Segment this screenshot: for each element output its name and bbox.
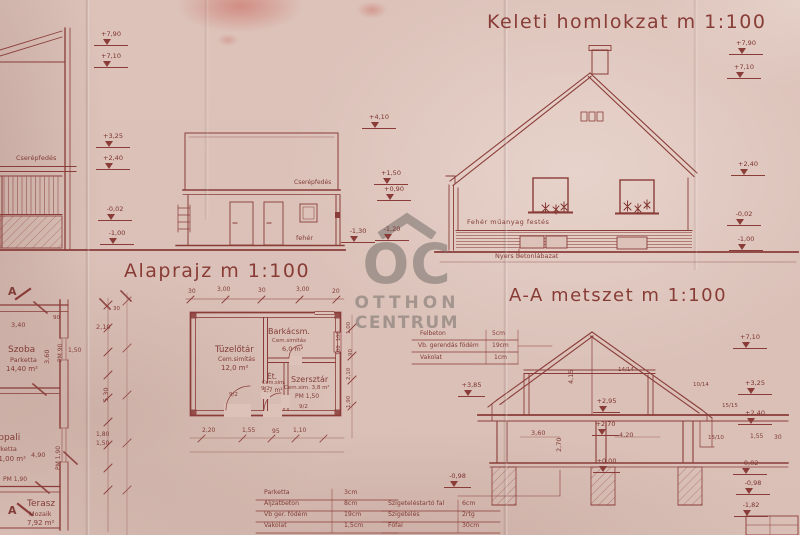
level-marker: -0,98	[736, 480, 770, 495]
room-label: Szoba	[8, 346, 35, 355]
title-east-facade: Keleti homlokzat m 1:100	[487, 13, 766, 32]
table-cell: 8cm	[344, 501, 357, 507]
dim-label: 2,10	[96, 324, 110, 331]
plinth-label: Nyers betonlábazat	[495, 253, 558, 260]
west-building-drawing	[0, 28, 76, 250]
dim-label: 90	[349, 349, 355, 356]
room-finish: Cem.simítás	[272, 339, 306, 345]
level-marker: +7,10	[733, 334, 767, 349]
dim-label: 30	[188, 289, 196, 295]
table-cell: Szigeteléstartó fal	[388, 501, 444, 507]
paper-crease	[204, 0, 209, 220]
dim-label: 1,50	[68, 348, 81, 354]
table-cell: Szigetelés	[388, 512, 420, 518]
roof-material-label: Cserépfedés	[16, 155, 56, 162]
room-area: 14,40 m²	[6, 366, 38, 373]
level-marker: +7,90	[94, 31, 128, 46]
table-cell: 3cm	[344, 490, 357, 496]
door-size-mark: 9/2	[299, 405, 308, 411]
level-marker: -0,02	[98, 206, 132, 221]
level-marker: +2,95	[593, 398, 620, 413]
paper-crease	[693, 0, 698, 270]
dim-label: 2,70	[556, 438, 563, 452]
door-size-mark: 9/2	[261, 387, 270, 393]
table-cell: Vakolat	[420, 355, 442, 361]
table-cell: 19cm	[344, 512, 361, 518]
level-marker: +0,90	[377, 186, 411, 201]
dim-label: 1,10	[293, 428, 306, 434]
room-label: Szersztár	[291, 376, 328, 384]
door-height-label: PM 90	[58, 344, 64, 362]
level-marker: -0,02	[727, 211, 761, 226]
table-cell: 30cm	[462, 523, 479, 529]
table-cell: Aljzatbeton	[264, 501, 299, 507]
door-size-mark: 9/2	[229, 393, 238, 399]
table-cell: 2rtg	[462, 512, 475, 518]
door-height-label: PM 1,90	[3, 477, 27, 483]
dim-label: 2,10	[347, 368, 353, 380]
timber-size-mark: 15/10	[708, 436, 724, 442]
level-marker: +2,40	[738, 410, 772, 425]
roof-material-label: Cserépfedés	[294, 180, 331, 186]
table-cell: 1,5cm	[344, 523, 363, 529]
section-letter-a-bottom: A	[8, 505, 17, 516]
level-marker: +7,10	[94, 53, 128, 68]
wall-finish-label: fehér	[296, 235, 313, 242]
level-marker: +2,40	[731, 161, 765, 176]
room-finish: Cem.sim. 3,8 m²	[284, 386, 330, 392]
level-marker: +3,25	[738, 380, 772, 395]
dim-label: 3,60	[44, 350, 51, 364]
dim-label: 5,30	[103, 388, 110, 402]
dim-label: 30	[774, 435, 782, 441]
table-cell: Vakolat	[264, 523, 287, 529]
dim-label: 1,55	[750, 434, 763, 440]
dim-label: 20	[332, 289, 340, 295]
dim-label: 1,55	[242, 428, 255, 434]
table-cell: Felbeton	[420, 331, 446, 337]
level-marker: -1,00	[729, 236, 763, 251]
table-cell: 5cm	[492, 331, 505, 337]
dim-label: 1,00	[347, 322, 353, 334]
door-height-label: PM 1,90	[56, 446, 62, 470]
table-cell: 19cm	[492, 343, 509, 349]
room-label: Tüzelőtár	[215, 346, 254, 355]
paper-crease	[503, 0, 508, 535]
table-cell: Vb. gerendás födém	[418, 343, 479, 349]
level-marker: -1,00	[100, 230, 134, 245]
dim-label: 3,00	[217, 287, 230, 293]
room-area: 21,00 m²	[0, 456, 26, 463]
table-cell: Parketta	[264, 490, 290, 496]
level-marker: -0,02	[733, 460, 767, 475]
dim-label: 3,40	[11, 322, 25, 329]
level-marker: ±0,00	[593, 458, 620, 473]
level-marker: +3,25	[96, 133, 130, 148]
window-size-mark: 100	[337, 345, 342, 355]
level-marker: +1,50	[374, 170, 408, 185]
dim-label: 90	[53, 316, 60, 322]
title-floor-plan: Alaprajz m 1:100	[124, 262, 310, 281]
room-finish: Cem.simítás	[218, 357, 255, 363]
title-section: A-A metszet m 1:100	[509, 287, 727, 305]
level-marker: +3,85	[458, 382, 485, 397]
dim-label: 30	[258, 288, 266, 294]
level-marker: -0,98	[444, 473, 471, 488]
level-marker: -1,82	[734, 502, 768, 517]
paper-crease	[85, 0, 90, 535]
dim-label: 2,20	[202, 428, 215, 434]
room-label: Barkácsm.	[268, 328, 310, 336]
section-letter-a-top: A	[8, 286, 17, 297]
dim-label: 30	[113, 307, 120, 313]
dim-label: 4,20	[619, 432, 633, 439]
table-cell: 6cm	[462, 501, 475, 507]
table-cell: 1cm	[494, 355, 507, 361]
door-height-label: PM 1,50	[295, 394, 319, 400]
room-area: 6,0 m²	[282, 346, 303, 353]
table-cell: Vb ger. födém	[264, 512, 308, 518]
title-block-box	[746, 516, 798, 535]
room-label: Nappali	[0, 434, 20, 443]
level-marker: -1,20	[375, 226, 409, 241]
room-finish: Parketta	[10, 357, 37, 364]
timber-size-mark: 14/14	[618, 368, 634, 374]
room-finish: Mozaik	[29, 511, 52, 518]
dim-label: 3,60	[531, 430, 545, 437]
dim-label: 1,80	[96, 432, 109, 438]
level-marker: +2,40	[96, 155, 130, 170]
timber-size-mark: 10/14	[693, 383, 709, 389]
facade-paint-label: Fehér műanyag festés	[467, 219, 549, 226]
outbuilding-elevation-drawing	[178, 133, 340, 245]
level-marker: +7,90	[729, 40, 763, 55]
window-size-mark: 100	[337, 331, 342, 341]
dim-label: 4,15	[568, 370, 575, 384]
dim-label: 95	[272, 429, 280, 435]
dim-label: 1,50	[96, 441, 109, 447]
watermark-line1: OTTHON	[350, 293, 464, 313]
table-cell: Főfal	[388, 523, 403, 529]
dim-label: 4,90	[31, 452, 45, 459]
room-area: 7,92 m²	[27, 520, 54, 527]
level-marker: +7,10	[727, 64, 761, 79]
blueprint-photo: Keleti homlokzat m 1:100 Alaprajz m 1:10…	[0, 0, 800, 535]
room-label: Terasz	[27, 500, 55, 509]
room-finish: Parketta	[0, 446, 17, 453]
window-flowers-icon	[542, 200, 650, 214]
level-marker: +4,10	[362, 114, 396, 129]
level-marker: +2,70	[592, 421, 619, 436]
dim-label: 3,00	[296, 287, 309, 293]
room-area: 12,0 m²	[221, 365, 248, 372]
level-marker: -1,30	[341, 228, 375, 243]
timber-size-mark: 15/15	[722, 404, 738, 410]
watermark-brand: OC	[350, 239, 464, 290]
watermark-line2: CENTRUM	[350, 313, 464, 333]
dim-label: 1,90	[347, 396, 353, 408]
